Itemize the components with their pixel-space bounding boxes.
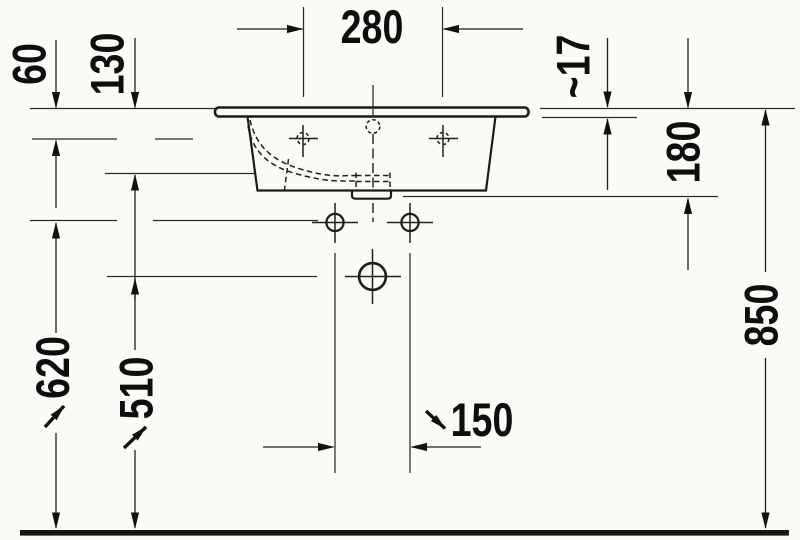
hidden-bowl-contour [248,85,390,222]
basin-right-wall [486,117,496,191]
dim-label-130: 130 [81,33,134,96]
dim-620-leader-arrow [45,406,64,427]
overflow-hidden-hole [366,120,380,134]
dimension-lines [45,29,766,528]
basin-outline [215,108,529,199]
drain-flange [352,191,391,199]
dim-label-280: 280 [341,1,404,54]
dim-510-leader-arrow [124,427,146,448]
dim-label-150: 150 [451,394,514,447]
dim-label-17: ~17 [547,35,600,99]
basin-rim-slab [215,108,529,117]
technical-drawing-canvas: 280 60 130 ~17 180 850 620 510 150 [0,0,800,540]
dim-label-180: 180 [657,121,710,184]
dim-label-60: 60 [3,43,56,85]
dim-label-850: 850 [735,284,788,347]
dim-150-leader-arrow [426,411,445,429]
dim-label-510: 510 [110,357,163,420]
drain-outlet [345,249,401,304]
washbasin-dimension-diagram: 280 60 130 ~17 180 850 620 510 150 [0,0,800,540]
bowl-inner-contour-lower [248,126,356,181]
floor-line [20,530,789,536]
dimension-labels: 280 60 130 ~17 180 850 620 510 150 [3,1,788,447]
dim-label-620: 620 [27,336,80,399]
